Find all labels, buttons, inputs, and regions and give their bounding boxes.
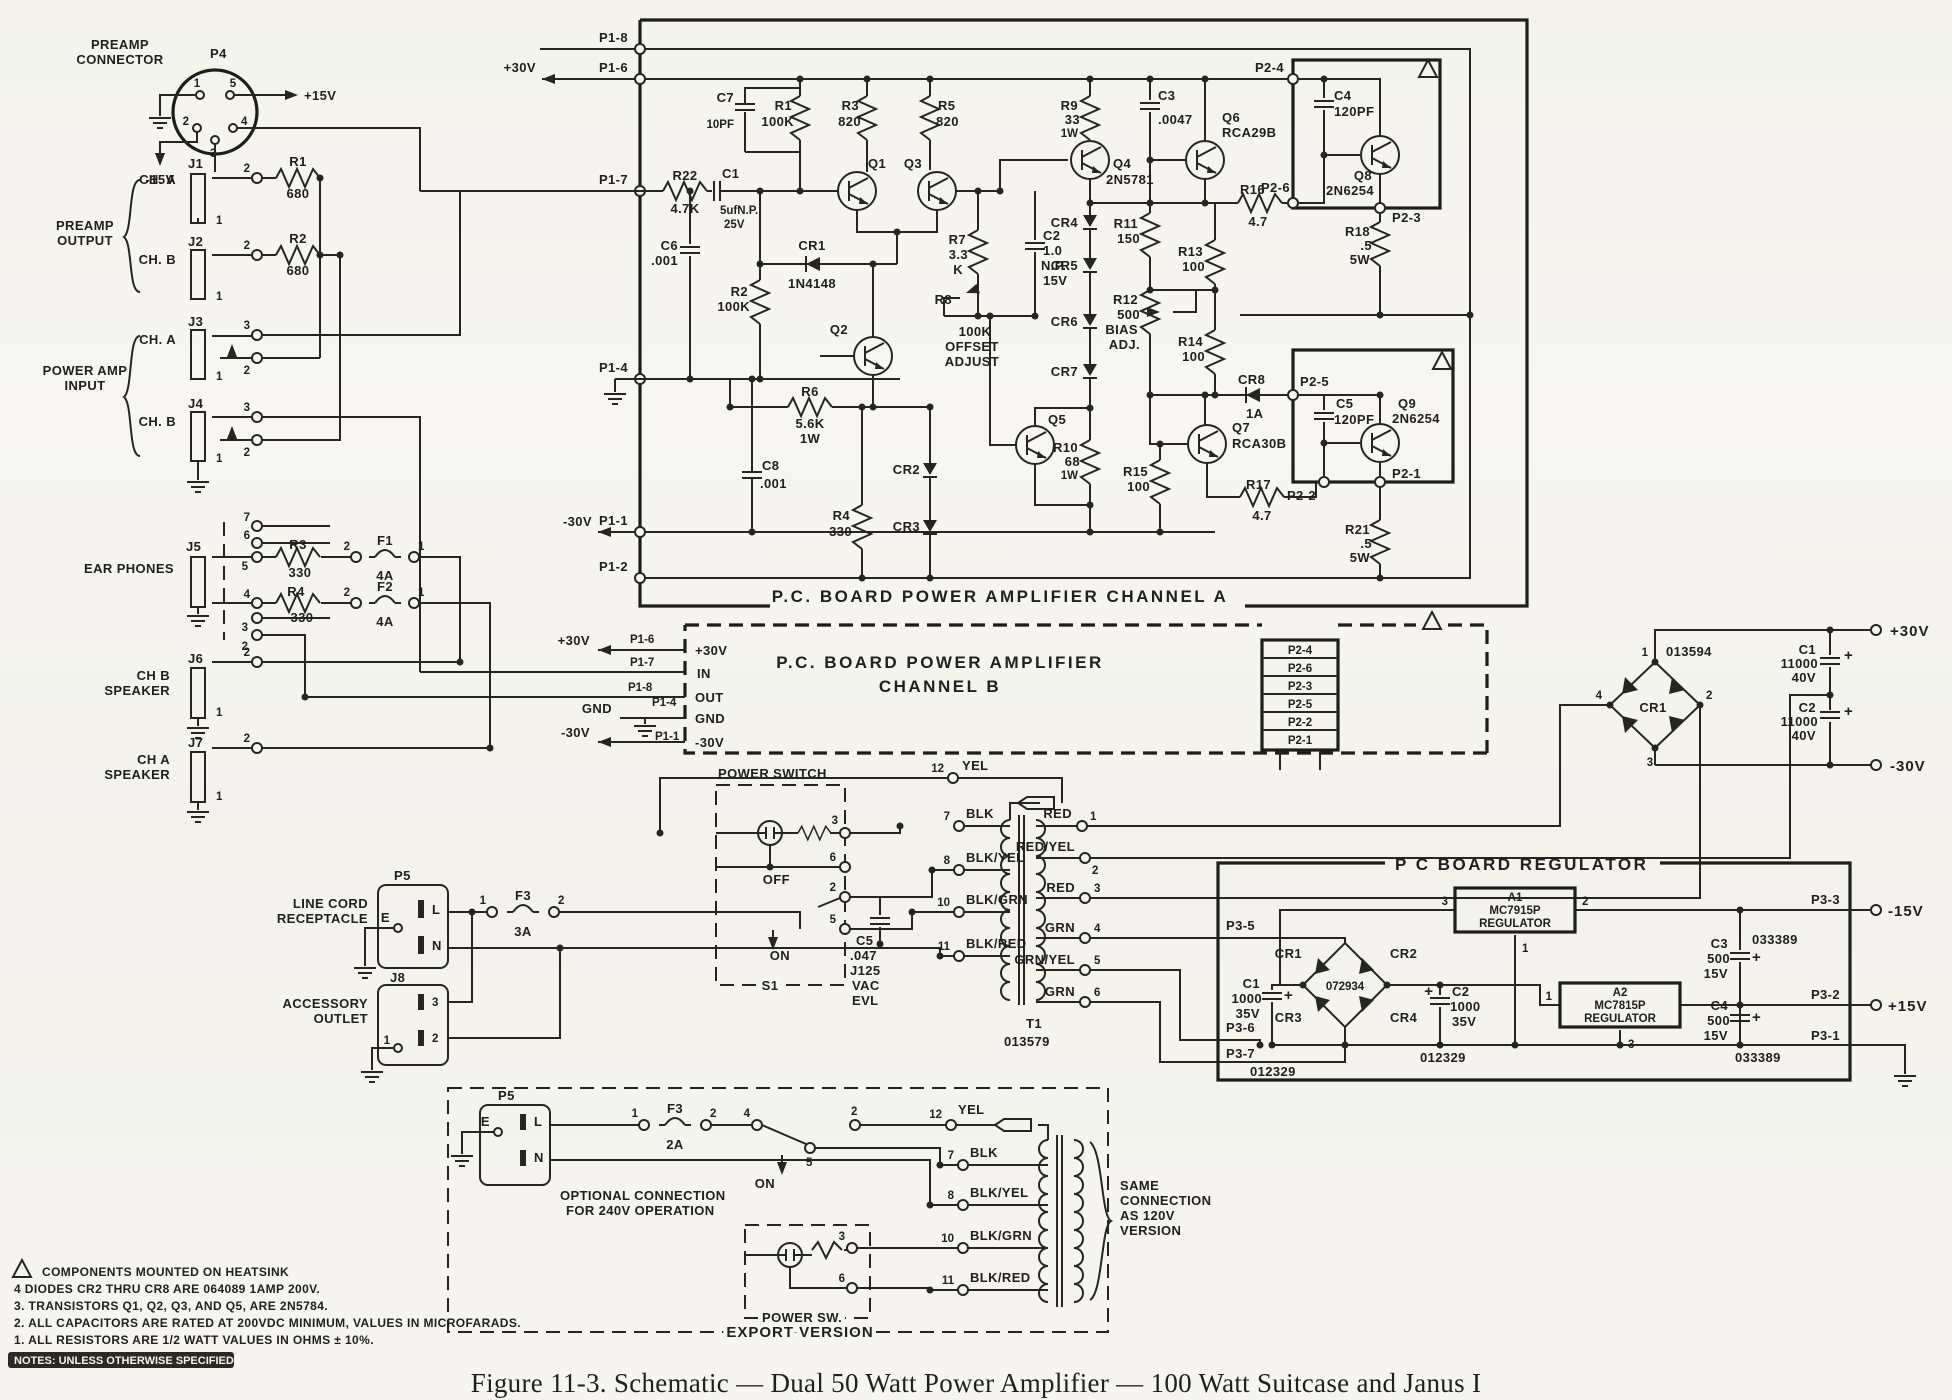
rg-c1-value: 1000 [1231, 991, 1262, 1006]
cb-in-in: IN [697, 666, 711, 681]
figure-caption: Figure 11-3. Schematic — Dual 50 Watt Po… [471, 1368, 1482, 1398]
ca-r22-value: 4.7K [670, 201, 699, 216]
ca-cr8-label: CR8 [1238, 372, 1265, 387]
ex-pin12: 12 [929, 1109, 942, 1121]
ex-lamp-pin6: 6 [839, 1273, 845, 1285]
j3-pin3-label: 3 [244, 320, 250, 332]
ex-same-label-3: AS 120V [1120, 1208, 1175, 1223]
ca-r22-label: R22 [672, 168, 697, 183]
j5-pin3-label: 3 [242, 622, 248, 634]
rg-a2-pin3: 3 [1628, 1039, 1634, 1051]
bridge-pin3: 3 [1647, 757, 1653, 769]
ca-c7-value: 10PF [707, 119, 735, 131]
cb-strip-p2-4: P2-4 [1288, 645, 1313, 657]
note-3: 3. TRANSISTORS Q1, Q2, Q3, AND Q5, ARE 2… [14, 1299, 328, 1313]
ca-r21-wattage: 5W [1350, 550, 1371, 565]
j4-channel-label: CH. B [139, 414, 176, 429]
rg-p3-2-label: P3-2 [1811, 987, 1840, 1002]
p5-label: P5 [394, 868, 411, 883]
ca-cr1-label: CR1 [798, 238, 825, 253]
j8-pin2: 2 [432, 1033, 438, 1045]
ca-c6-label: C6 [661, 238, 678, 253]
f1-pin2-label: 2 [344, 541, 350, 553]
rg-c1-label: C1 [1243, 976, 1260, 991]
ca-cr2-label: CR2 [893, 462, 920, 477]
ca-c1-value: 5ufN.P. [720, 205, 758, 217]
f2-pin1-label: 1 [418, 587, 425, 599]
ca-r5-value: 820 [936, 114, 959, 129]
ca-q1-label: Q1 [868, 156, 886, 171]
f1-pin1-label: 1 [418, 541, 425, 553]
tr-pin7: 7 [944, 811, 950, 823]
ca-q8-part: 2N6254 [1326, 183, 1374, 198]
preamp-section: 1 5 2 3 4 PREAMP CONNECTOR P4 +15V -15V … [43, 37, 490, 822]
ps-c2-plus: + [1844, 703, 1854, 720]
ca-r8-label: R8 [935, 292, 952, 307]
bridge-cr1-label: CR1 [1639, 700, 1666, 715]
rg-c3-label: C3 [1711, 936, 1728, 951]
tr-pin11: 11 [938, 941, 951, 953]
ca-q4-part: 2N5781 [1106, 172, 1154, 187]
export-version-title: EXPORT VERSION [726, 1324, 873, 1341]
sw-c5-value: .047 [850, 948, 877, 963]
ca-cr6-label: CR6 [1051, 314, 1078, 329]
ps-minus30-terminal: -30V [1890, 758, 1926, 775]
rg-c1-plus: + [1284, 987, 1294, 1004]
j7-pin1-label: 1 [216, 791, 223, 803]
tr-sec6: 6 [1094, 987, 1100, 999]
ca-r5-label: R5 [938, 98, 955, 113]
j1-label: J1 [188, 156, 203, 171]
ca-r21-value: .5 [1360, 536, 1372, 551]
ca-p2-3-label: P2-3 [1392, 210, 1421, 225]
ex-pin8: 8 [948, 1190, 955, 1202]
j1-channel-label: CH. A [139, 172, 176, 187]
ex-sw-pin4: 4 [744, 1108, 751, 1120]
bridge-part-number: 013594 [1666, 644, 1712, 659]
f2-value: 4A [376, 614, 394, 629]
ca-r15-label: R15 [1123, 464, 1148, 479]
ca-r10-value: 68 [1065, 454, 1080, 469]
j7-label: J7 [188, 735, 203, 750]
cb-strip-p2-2: P2-2 [1288, 717, 1312, 729]
cb-p1-1-label: P1-1 [655, 731, 680, 743]
rg-c3-plus: + [1752, 949, 1762, 966]
tr-t1-label: T1 [1026, 1016, 1042, 1031]
ca-minus30-label: -30V [563, 514, 592, 529]
ca-r3-value: 820 [838, 114, 861, 129]
rg-a2-pin1: 1 [1546, 991, 1553, 1003]
ca-bias-label: BIAS [1105, 322, 1138, 337]
ex-n-label: N [534, 1150, 544, 1165]
ca-cr7-label: CR7 [1051, 364, 1078, 379]
ca-r9-value: 33 [1065, 112, 1080, 127]
ca-c4-value: 120PF [1334, 104, 1374, 119]
ca-r1-label: R1 [775, 98, 792, 113]
j1-pin2-label: 2 [244, 163, 250, 175]
ps-c1-rating: 40V [1792, 670, 1816, 685]
sw-pin6: 6 [830, 852, 836, 864]
ca-r21-label: R21 [1345, 522, 1370, 537]
ca-r6-label: R6 [801, 384, 818, 399]
line-cord-label-2: RECEPTACLE [277, 911, 368, 926]
ca-c4-label: C4 [1334, 88, 1352, 103]
ca-p2-2-label: P2-2 [1287, 488, 1316, 503]
j3-channel-label: CH. A [139, 332, 176, 347]
cb-plus30-label: +30V [558, 633, 590, 648]
ex-on-label: ON [755, 1176, 775, 1191]
ca-r6-value: 5.6K [795, 416, 824, 431]
regulator-board: P C BOARD REGULATOR P3-5 P3-6 P3-7 CR1 C… [1218, 855, 1927, 1086]
ex-same-label-1: SAME [1120, 1178, 1159, 1193]
rg-c4-plus: + [1752, 1009, 1762, 1026]
p1-1-label: P1-1 [599, 513, 628, 528]
cb-in-minus30: -30V [695, 735, 724, 750]
accessory-label-2: OUTLET [314, 1011, 368, 1026]
sw-on-label: ON [770, 948, 790, 963]
rg-a1-function: REGULATOR [1479, 918, 1551, 930]
ca-q2-label: Q2 [830, 322, 848, 337]
rg-a2-function: REGULATOR [1584, 1013, 1656, 1025]
f2-label: F2 [377, 579, 393, 594]
sw-c5-value2: J125 [850, 963, 881, 978]
rg-a1-part: MC7915P [1489, 905, 1540, 917]
ca-c2-rating: 15V [1043, 273, 1067, 288]
ex-wire7: BLK [970, 1145, 998, 1160]
tr-sec3: 3 [1094, 883, 1100, 895]
ca-r1-value: 100K [761, 114, 794, 129]
ca-r11-label: R11 [1114, 216, 1138, 231]
ca-r18-label: R18 [1345, 224, 1370, 239]
ca-q6-label: Q6 [1222, 110, 1240, 125]
ca-q9-label: Q9 [1398, 396, 1416, 411]
ca-c5-value: 120PF [1334, 412, 1374, 427]
j8-label: J8 [390, 970, 405, 985]
ex-pin11: 11 [942, 1275, 955, 1287]
ca-plus30-label: +30V [504, 60, 536, 75]
ca-q8-label: Q8 [1354, 168, 1372, 183]
note-heatsink: COMPONENTS MOUNTED ON HEATSINK [42, 1265, 289, 1279]
ca-r7-value2: K [953, 262, 963, 277]
sw-pin5: 5 [830, 914, 837, 926]
rg-cr2-label: CR2 [1390, 946, 1417, 961]
ca-r8-value: 100K [959, 324, 992, 339]
j8-pin3: 3 [432, 997, 438, 1009]
bridge-pin1: 1 [1642, 647, 1649, 659]
sw-c5-value3: VAC [852, 978, 880, 993]
j6-channel-label-1: CH B [137, 668, 170, 683]
regulator-title: P C BOARD REGULATOR [1395, 855, 1648, 874]
ca-r10-wattage: 1W [1061, 470, 1078, 482]
j4-pin3-label: 3 [244, 402, 250, 414]
note-1: 1. ALL RESISTORS ARE 1/2 WATT VALUES IN … [14, 1333, 374, 1347]
rg-plus15-terminal: +15V [1888, 998, 1927, 1015]
rg-a2-part: MC7815P [1594, 1000, 1645, 1012]
ca-q3-label: Q3 [904, 156, 922, 171]
rg-p3-6-label: P3-6 [1226, 1020, 1255, 1035]
p4-label: P4 [210, 46, 227, 61]
ca-r2-value: 100K [717, 299, 750, 314]
ca-r18-value: .5 [1360, 238, 1372, 253]
ex-f3-pin2: 2 [710, 1108, 716, 1120]
schematic-page: 1 5 2 3 4 PREAMP CONNECTOR P4 +15V -15V … [0, 0, 1952, 1400]
ca-adjust-label: ADJUST [945, 354, 999, 369]
rg-cr1-label: CR1 [1275, 946, 1302, 961]
rg-c3-part: 033389 [1752, 932, 1798, 947]
ca-c6-value: .001 [651, 253, 678, 268]
ex-pin7: 7 [948, 1150, 954, 1162]
ps-c2-label: C2 [1799, 700, 1816, 715]
channel-a-title: P.C. BOARD POWER AMPLIFIER CHANNEL A [772, 587, 1228, 606]
ear-phones-label: EAR PHONES [84, 561, 174, 576]
cb-strip-p2-5: P2-5 [1288, 699, 1313, 711]
ex-p5-label: P5 [498, 1088, 515, 1103]
rg-minus15-terminal: -15V [1888, 903, 1924, 920]
ca-r12-value: 500 [1117, 307, 1140, 322]
ca-r2-label: R2 [731, 284, 748, 299]
ca-r18-wattage: 5W [1350, 252, 1371, 267]
export-version-section: EXPORT VERSION P5 E L N 1 F3 2 2A 4 5 2 … [448, 1088, 1211, 1341]
ex-pin10: 10 [941, 1233, 954, 1245]
preamp-connector-label-1: PREAMP [91, 37, 149, 52]
bridge-pin4: 4 [1596, 690, 1603, 702]
ps-c1-plus: + [1844, 647, 1854, 664]
ca-p2-1-label: P2-1 [1392, 466, 1421, 481]
ps-c2-rating: 40V [1792, 728, 1816, 743]
rg-a1-pin1: 1 [1522, 943, 1529, 955]
rg-p3-3-label: P3-3 [1811, 892, 1840, 907]
ca-r7-label: R7 [949, 232, 966, 247]
j7-channel-label-1: CH A [137, 752, 170, 767]
j3-label: J3 [188, 314, 203, 329]
ex-sw-pin5: 5 [806, 1157, 813, 1169]
p5-n-label: N [432, 938, 442, 953]
ex-l-label: L [534, 1114, 542, 1129]
tr-wire-s5: GRN/YEL [1014, 952, 1075, 967]
sw-c5-value4: EVL [852, 993, 878, 1008]
tr-sec1: 1 [1090, 811, 1097, 823]
ex-wire8: BLK/YEL [970, 1185, 1028, 1200]
channel-b-board: P.C. BOARD POWER AMPLIFIER CHANNEL B +30… [305, 612, 1487, 770]
ca-c1-rating: 25V [724, 219, 745, 231]
ca-r12-label: R12 [1113, 292, 1138, 307]
cb-in-out: OUT [695, 690, 724, 705]
p4-pin4-label: 4 [241, 116, 248, 128]
cb-in-gnd: GND [695, 711, 725, 726]
p5-l-label: L [432, 902, 440, 917]
note-4: 4 DIODES CR2 THRU CR8 ARE 064089 1AMP 20… [14, 1282, 320, 1296]
ca-r16-value: 4.7 [1248, 214, 1267, 229]
p4-pin2-label: 2 [183, 116, 189, 128]
ca-r9-label: R9 [1061, 98, 1078, 113]
p1-6-label: P1-6 [599, 60, 628, 75]
r3-label: R3 [289, 537, 306, 552]
r1-label: R1 [289, 154, 306, 169]
ca-offset-label: OFFSET [945, 339, 999, 354]
ca-cr8-value: 1A [1246, 406, 1264, 421]
accessory-label-1: ACCESSORY [283, 996, 368, 1011]
ca-c7-label: C7 [717, 90, 734, 105]
tr-pin8: 8 [944, 855, 951, 867]
ca-r13-value: 100 [1182, 259, 1205, 274]
ca-r17-value: 4.7 [1252, 508, 1271, 523]
ca-r6-wattage: 1W [800, 431, 821, 446]
ca-r4-value: 330 [829, 524, 852, 539]
tr-wire-s6: GRN [1045, 984, 1075, 999]
tr-pin12: 12 [931, 763, 944, 775]
ca-q6-part: RCA29B [1222, 125, 1276, 140]
j3-pin2-label: 2 [244, 365, 250, 377]
ca-r3-label: R3 [842, 98, 859, 113]
note-2: 2. ALL CAPACITORS ARE RATED AT 200VDC MI… [14, 1316, 521, 1330]
power-amp-input-label-1: POWER AMP [43, 363, 128, 378]
sw-c5-label: C5 [856, 933, 873, 948]
p1-4-label: P1-4 [599, 360, 628, 375]
p1-8-label: P1-8 [599, 30, 628, 45]
r3-value: 330 [289, 565, 312, 580]
rg-p3-7-label: P3-7 [1226, 1046, 1255, 1061]
ex-wire10: BLK/GRN [970, 1228, 1032, 1243]
ca-c3-value: .0047 [1158, 112, 1193, 127]
j5-pin7-label: 7 [244, 512, 250, 524]
ca-c3-label: C3 [1158, 88, 1175, 103]
tr-wire12: YEL [962, 758, 988, 773]
j7-pin2-label: 2 [244, 733, 250, 745]
plus15v-label: +15V [304, 88, 336, 103]
rg-c2-plus: + [1424, 983, 1434, 1000]
rg-p3-1-label: P3-1 [1811, 1028, 1840, 1043]
ex-wire12: YEL [958, 1102, 984, 1117]
r2-label: R2 [289, 231, 306, 246]
j2-pin1-label: 1 [216, 291, 223, 303]
tr-wire10: BLK/GRN [966, 892, 1028, 907]
j7-channel-label-2: SPEAKER [104, 767, 170, 782]
transformer-section: 12 YEL 7 BLK 8 BLK/YEL 10 BLK/GRN 11 BLK… [912, 758, 1218, 1062]
ca-r14-value: 100 [1182, 349, 1205, 364]
ca-p2-6-label: P2-6 [1261, 180, 1290, 195]
cb-strip-p2-1: P2-1 [1288, 735, 1313, 747]
j3-pin1-label: 1 [216, 371, 223, 383]
j5-pin4-label: 4 [244, 589, 251, 601]
ca-cr1-value: 1N4148 [788, 276, 836, 291]
ex-wire11: BLK/RED [970, 1270, 1031, 1285]
tr-wire7: BLK [966, 806, 994, 821]
rg-a1-pin2: 2 [1582, 896, 1588, 908]
ca-r15-value: 100 [1127, 479, 1150, 494]
bridge-pin2: 2 [1706, 690, 1712, 702]
rg-bridge-part: 072934 [1326, 981, 1365, 993]
ca-r7-value: 3.3 [949, 247, 968, 262]
ca-c1-label: C1 [722, 166, 739, 181]
preamp-output-label-2: OUTPUT [57, 233, 113, 248]
preamp-connector-label-2: CONNECTOR [76, 52, 163, 67]
j2-pin2-label: 2 [244, 240, 250, 252]
rg-a1-label: A1 [1508, 892, 1523, 904]
ca-cr5-label: CR5 [1051, 258, 1078, 273]
j5-pin5-label: 5 [242, 561, 249, 573]
f3-label: F3 [515, 888, 531, 903]
notes-header: NOTES: UNLESS OTHERWISE SPECIFIED [14, 1355, 234, 1367]
rg-c2-part: 012329 [1420, 1050, 1466, 1065]
rg-a1-pin3: 3 [1442, 896, 1448, 908]
tr-sec5: 5 [1094, 955, 1101, 967]
sw-s1-label: S1 [762, 978, 779, 993]
f3-value: 3A [514, 924, 532, 939]
ca-cr4-label: CR4 [1051, 215, 1079, 230]
ex-power-sw-label: POWER SW. [762, 1310, 842, 1325]
tr-part-number: 013579 [1004, 1034, 1050, 1049]
rg-c2-rating: 35V [1452, 1014, 1476, 1029]
tr-pin10: 10 [937, 897, 950, 909]
rg-c4-label: C4 [1711, 998, 1729, 1013]
cb-in-plus30: +30V [695, 643, 727, 658]
rg-cr4-label: CR4 [1390, 1010, 1418, 1025]
j8-pin1: 1 [384, 1035, 391, 1047]
j1-pin1-label: 1 [216, 215, 223, 227]
schematic-canvas: 1 5 2 3 4 PREAMP CONNECTOR P4 +15V -15V … [0, 0, 1952, 1400]
rg-c4-rating: 15V [1704, 1028, 1728, 1043]
ex-same-label-2: CONNECTION [1120, 1193, 1211, 1208]
ca-r11-value: 150 [1117, 231, 1140, 246]
j4-pin1-label: 1 [216, 453, 223, 465]
ca-q9-part: 2N6254 [1392, 411, 1440, 426]
p4-pin1-label: 1 [194, 78, 201, 90]
sw-pin2: 2 [830, 882, 836, 894]
cb-strip-p2-3: P2-3 [1288, 681, 1312, 693]
j5-label: J5 [186, 539, 201, 554]
notes-section: COMPONENTS MOUNTED ON HEATSINK 4 DIODES … [8, 1260, 521, 1368]
channel-b-title-2: CHANNEL B [879, 677, 1001, 696]
ca-r13-label: R13 [1178, 244, 1203, 259]
ca-c8-value: .001 [760, 476, 787, 491]
tr-wire-s2: RED/YEL [1016, 839, 1075, 854]
r2-value: 680 [287, 263, 310, 278]
ca-q7-part: RCA30B [1232, 436, 1286, 451]
ps-c2-value: 11000 [1781, 714, 1818, 729]
ex-e-label: E [481, 1114, 490, 1129]
ca-c2-value: 1.0 [1043, 243, 1062, 258]
ca-p2-5-label: P2-5 [1300, 374, 1329, 389]
tr-wire-s4: GRN [1045, 920, 1075, 935]
ex-optional-label-1: OPTIONAL CONNECTION [560, 1188, 726, 1203]
rg-c1-rating: 35V [1236, 1006, 1260, 1021]
ca-c5-label: C5 [1336, 396, 1353, 411]
j4-label: J4 [188, 396, 204, 411]
p4-pin5-label: 5 [230, 78, 237, 90]
ex-sw-pin2: 2 [851, 1106, 857, 1118]
ca-c8-label: C8 [762, 458, 779, 473]
p5-e-label: E [381, 910, 390, 925]
cb-p1-7-label: P1-7 [630, 657, 654, 669]
cb-p1-8-label: P1-8 [628, 682, 653, 694]
ps-c1-label: C1 [1799, 642, 1816, 657]
ca-adj-label: ADJ. [1109, 337, 1140, 352]
ca-r17-label: R17 [1246, 477, 1271, 492]
ex-optional-label-2: FOR 240V OPERATION [566, 1203, 715, 1218]
r1-value: 680 [287, 186, 310, 201]
tr-sec2: 2 [1092, 865, 1098, 877]
cb-strip-p2-6: P2-6 [1288, 663, 1312, 675]
ca-r14-label: R14 [1178, 334, 1203, 349]
rg-c4-value: 500 [1707, 1013, 1730, 1028]
ca-c2-label: C2 [1043, 228, 1060, 243]
ps-plus30-terminal: +30V [1890, 623, 1929, 640]
f3-pin2: 2 [558, 895, 564, 907]
j2-channel-label: CH. B [139, 252, 176, 267]
r4-label: R4 [287, 584, 305, 599]
rg-c1-part: 012329 [1250, 1064, 1296, 1079]
p1-2-label: P1-2 [599, 559, 628, 574]
